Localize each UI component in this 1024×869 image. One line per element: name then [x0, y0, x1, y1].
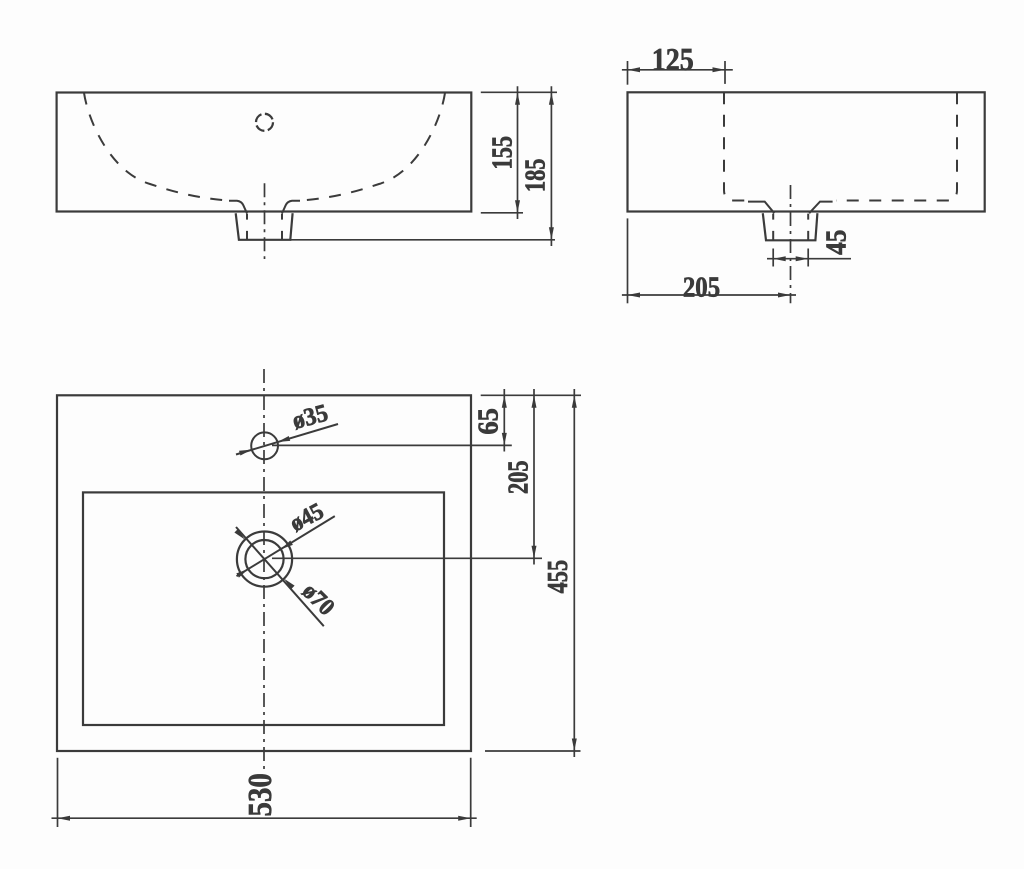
svg-text:530: 530 — [241, 773, 279, 816]
svg-text:125: 125 — [652, 41, 694, 77]
svg-text:ø70: ø70 — [297, 578, 340, 621]
svg-text:ø35: ø35 — [289, 399, 331, 435]
svg-text:155: 155 — [487, 136, 518, 170]
svg-text:65: 65 — [473, 408, 504, 435]
svg-text:205: 205 — [683, 271, 720, 303]
svg-text:185: 185 — [520, 159, 551, 193]
svg-text:205: 205 — [503, 460, 534, 494]
svg-text:455: 455 — [543, 560, 574, 594]
svg-text:ø45: ø45 — [286, 498, 329, 538]
svg-text:45: 45 — [820, 230, 852, 255]
